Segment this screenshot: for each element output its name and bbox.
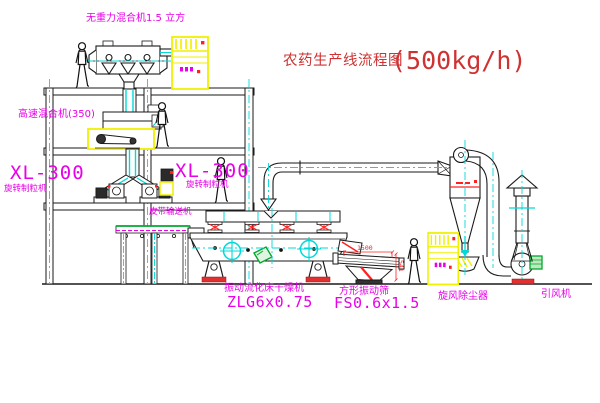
control-cabinet-ground	[428, 233, 458, 284]
label-dryer-model: ZLG6x0.75	[227, 293, 313, 311]
dim-sieve-height: 541	[397, 260, 405, 272]
label-gravity-mixer: 无重力混合机1.5 立方	[86, 11, 185, 24]
cad-drawing-canvas: 无重力混合机1.5 立方 农药生产线流程图 (500kg/h) 高速混合机(35…	[0, 0, 600, 403]
dim-sieve-length: 1500	[357, 244, 373, 252]
pesticide-process-flow-diagram: 无重力混合机1.5 立方 农药生产线流程图 (500kg/h) 高速混合机(35…	[0, 0, 600, 403]
page-title: 农药生产线流程图	[283, 52, 403, 69]
label-granulator-center-model: XL-300	[175, 160, 250, 182]
exhaust-duct	[258, 161, 480, 211]
label-granulator-center-name: 旋转制粒机	[186, 179, 229, 190]
control-cabinet-top	[172, 37, 208, 89]
gravity-free-mixer	[86, 41, 177, 89]
granulator-left	[94, 184, 126, 203]
high-speed-mixer	[88, 105, 163, 149]
person-top-floor	[76, 43, 89, 88]
control-box-small	[160, 169, 173, 195]
label-sieve-model: FS0.6x1.5	[334, 294, 420, 312]
label-granulator-left-name: 旋转制粒机	[4, 183, 47, 194]
label-belt-conveyor: 皮带输送机	[149, 206, 192, 217]
page-title-capacity: (500kg/h)	[391, 46, 526, 75]
label-cyclone: 旋风除尘器	[438, 289, 488, 302]
label-granulator-left-model: XL-300	[10, 162, 85, 184]
feed-duct-upper	[123, 89, 136, 113]
fluid-bed-dryer	[190, 208, 347, 282]
person-ground	[408, 239, 421, 284]
label-fan: 引风机	[541, 287, 571, 300]
label-high-speed-mixer: 高速混合机(350)	[18, 107, 95, 120]
